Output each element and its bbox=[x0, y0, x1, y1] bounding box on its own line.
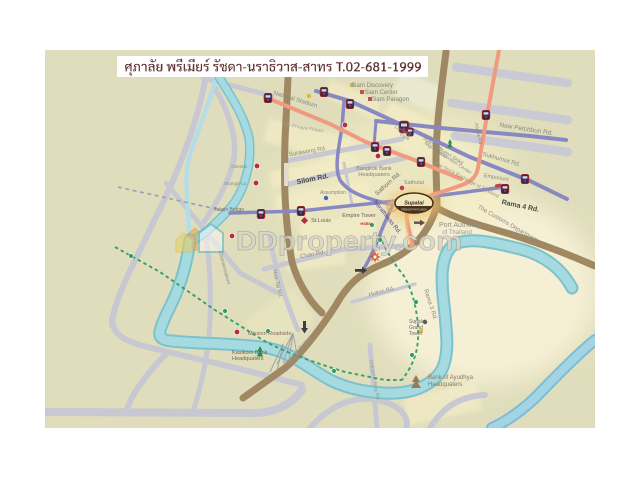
svg-text:Bank of Ayudhya: Bank of Ayudhya bbox=[428, 375, 474, 381]
svg-text:Siam Discovery: Siam Discovery bbox=[351, 83, 393, 89]
svg-text:Siam Center: Siam Center bbox=[364, 90, 397, 96]
svg-text:DDproperty.com: DDproperty.com bbox=[236, 226, 462, 256]
svg-text:HSBC: HSBC bbox=[360, 221, 371, 226]
svg-text:Assumption: Assumption bbox=[320, 190, 346, 196]
svg-text:St.Louis: St.Louis bbox=[311, 218, 331, 224]
svg-text:Tower: Tower bbox=[409, 331, 423, 337]
svg-text:Port Authority: Port Authority bbox=[439, 222, 482, 229]
svg-text:Mission Roadside: Mission Roadside bbox=[248, 331, 291, 337]
svg-text:Oriental: Oriental bbox=[231, 164, 247, 169]
svg-text:Taksin Bridge: Taksin Bridge bbox=[214, 207, 244, 213]
svg-text:Shangri-La: Shangri-La bbox=[224, 181, 247, 186]
svg-text:Siam Paragon: Siam Paragon bbox=[371, 97, 409, 103]
svg-text:Empire Tower: Empire Tower bbox=[342, 213, 376, 219]
svg-text:Headquaters: Headquaters bbox=[232, 356, 264, 362]
svg-text:Headquaters: Headquaters bbox=[428, 382, 462, 388]
svg-text:Headquaters: Headquaters bbox=[358, 172, 390, 178]
svg-text:of Thailand: of Thailand bbox=[442, 230, 472, 236]
svg-text:Sathutai: Sathutai bbox=[404, 180, 424, 186]
svg-text:PREMIER RATCHADA: PREMIER RATCHADA bbox=[401, 209, 427, 212]
svg-text:Supalai: Supalai bbox=[404, 201, 424, 207]
